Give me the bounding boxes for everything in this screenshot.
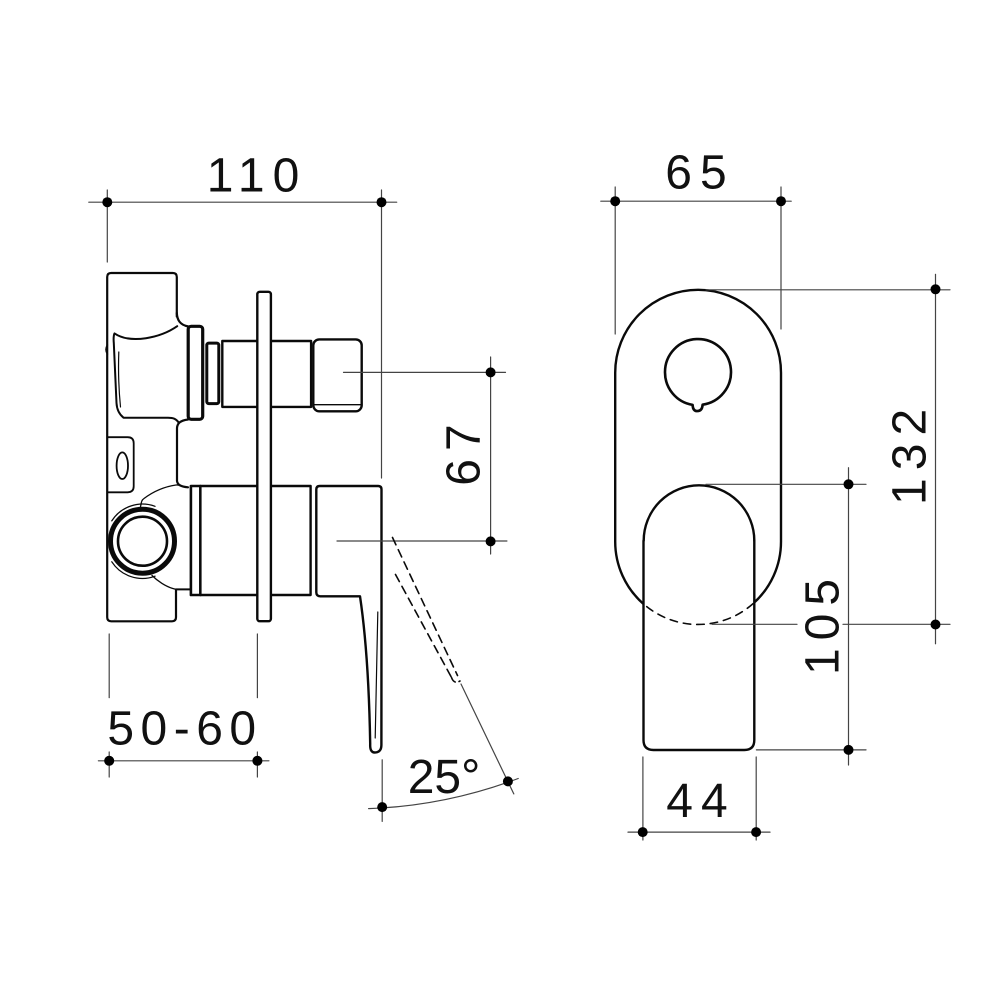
svg-text:132: 132 [884, 401, 937, 505]
svg-text:50-60: 50-60 [107, 703, 262, 756]
svg-text:65: 65 [665, 147, 734, 200]
svg-text:67: 67 [438, 416, 491, 485]
svg-text:110: 110 [207, 150, 308, 203]
svg-text:44: 44 [666, 775, 735, 828]
svg-text:105: 105 [797, 571, 850, 675]
svg-text:25°: 25° [408, 751, 481, 804]
